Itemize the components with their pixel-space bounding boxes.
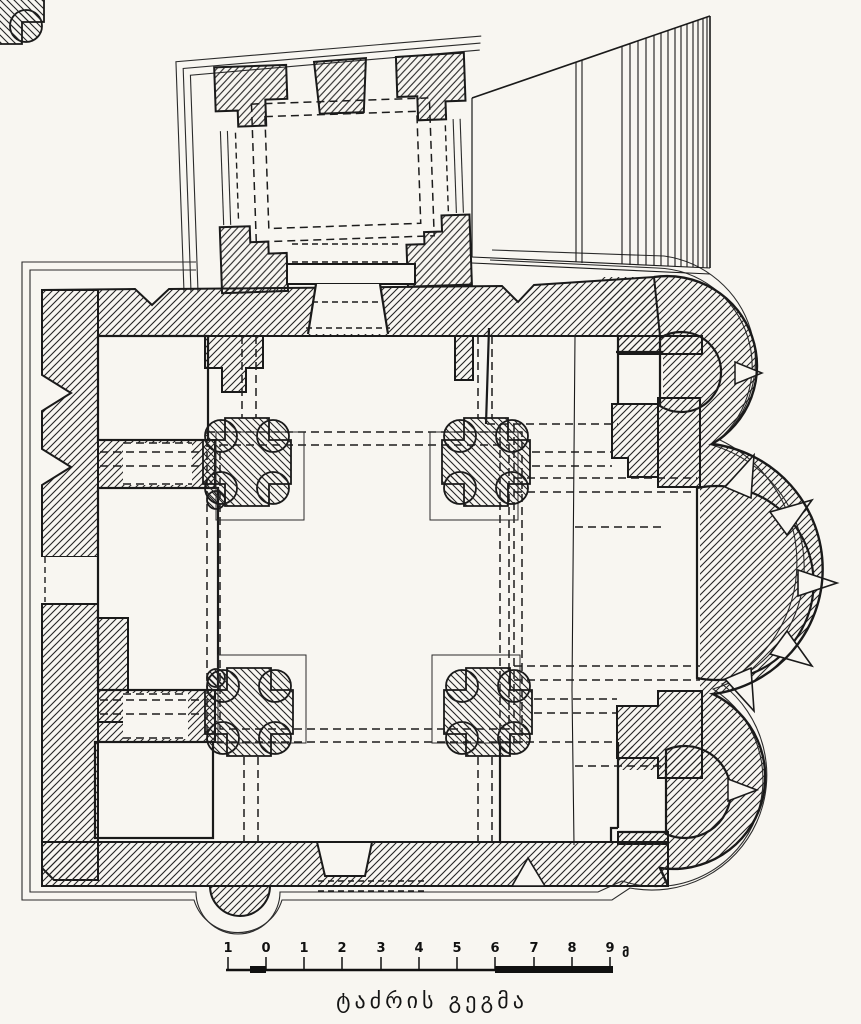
annex-pier-north-center: [314, 58, 368, 114]
pier-northwest: [203, 418, 291, 506]
pier-southeast: [444, 668, 532, 756]
pier-northeast: [442, 418, 530, 506]
south-apse-forechoir: [618, 770, 666, 836]
church-floor-plan-drawing: 1 0 1 2 3 4 5 6 7 8 9 მ ტაძრის გეგმა: [0, 0, 861, 1024]
passage-northwest: [123, 443, 192, 485]
scale-label: 0: [261, 941, 270, 956]
room-southwest: [95, 742, 213, 838]
north-wall-pilaster-west: [205, 336, 263, 392]
pier-southwest: [205, 668, 293, 756]
stair-fan: [472, 16, 710, 274]
annex-pier-northwest: [214, 65, 288, 127]
scanned-plan-page: 1 0 1 2 3 4 5 6 7 8 9 მ ტაძრის გეგმა: [0, 0, 861, 1024]
scale-label: 2: [337, 941, 346, 956]
fan-top-edge: [472, 16, 710, 98]
east-apses: [600, 276, 837, 886]
scale-label: 8: [567, 941, 576, 956]
annex-door-step-upper: [290, 242, 404, 264]
annex-pier-northeast: [396, 53, 466, 121]
scale-label: 1: [299, 941, 308, 956]
west-wall-lower: [42, 604, 98, 880]
north-wall-pilaster-east: [455, 336, 473, 380]
annex-side-dash-west: [235, 133, 238, 223]
pier-shape: [0, 0, 44, 44]
west-wall-upper: [42, 290, 98, 557]
scale-label: 6: [490, 941, 499, 956]
scale-bar-block-right: [495, 966, 613, 973]
scale-label: 4: [414, 941, 423, 956]
wall-above-central-apse: [658, 398, 700, 487]
annex-pier-southwest: [220, 225, 288, 293]
annex-side-dash-east: [445, 125, 448, 215]
plan-caption: ტაძრის გეგმა: [336, 989, 528, 1014]
chancel-axis-line: [572, 336, 575, 845]
north-door-landing: [287, 264, 415, 284]
south-wall-bastion: [210, 886, 270, 916]
north-chapel-west-wall: [486, 328, 489, 424]
scale-unit-label: მ: [622, 946, 629, 961]
annex-vault-dashed-inner: [265, 111, 421, 228]
scale-label: 5: [452, 941, 461, 956]
interior-rooms: [95, 328, 666, 845]
scale-label: 7: [529, 941, 538, 956]
scale-bar: 1 0 1 2 3 4 5 6 7 8 9 მ: [223, 941, 629, 973]
scale-label: 1: [223, 941, 232, 956]
annex-vault-dashed-outer: [251, 98, 434, 242]
west-door: [40, 557, 98, 602]
north-door-splay: [308, 284, 388, 334]
room-northwest: [98, 336, 208, 440]
scale-bar-block-left: [250, 966, 266, 973]
scale-label: 3: [376, 941, 385, 956]
fan-bottom-edge: [472, 257, 710, 268]
scale-bar-labels: 1 0 1 2 3 4 5 6 7 8 9: [223, 941, 614, 956]
scale-label: 9: [605, 941, 614, 956]
annex-side-reveals: [220, 119, 463, 225]
south-door: [317, 842, 372, 876]
